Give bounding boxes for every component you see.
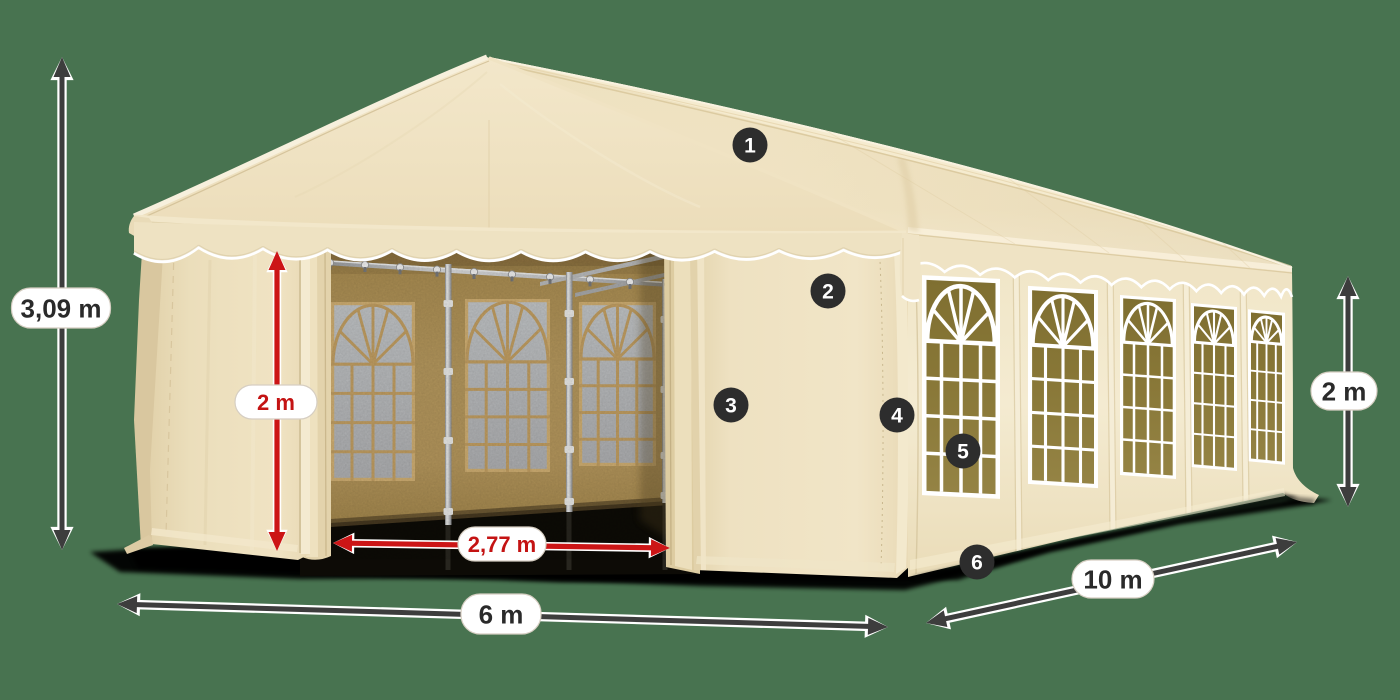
svg-text:3: 3 [725, 395, 737, 418]
svg-text:2 m: 2 m [257, 390, 295, 415]
svg-text:6 m: 6 m [479, 599, 524, 629]
svg-text:3,09 m: 3,09 m [21, 293, 102, 323]
svg-text:2: 2 [822, 281, 834, 304]
svg-text:10 m: 10 m [1083, 564, 1142, 594]
svg-text:1: 1 [744, 135, 756, 158]
svg-text:5: 5 [957, 441, 969, 464]
svg-text:4: 4 [891, 405, 903, 428]
svg-text:2,77 m: 2,77 m [468, 532, 537, 557]
svg-text:6: 6 [971, 552, 983, 575]
svg-text:2 m: 2 m [1322, 376, 1367, 406]
